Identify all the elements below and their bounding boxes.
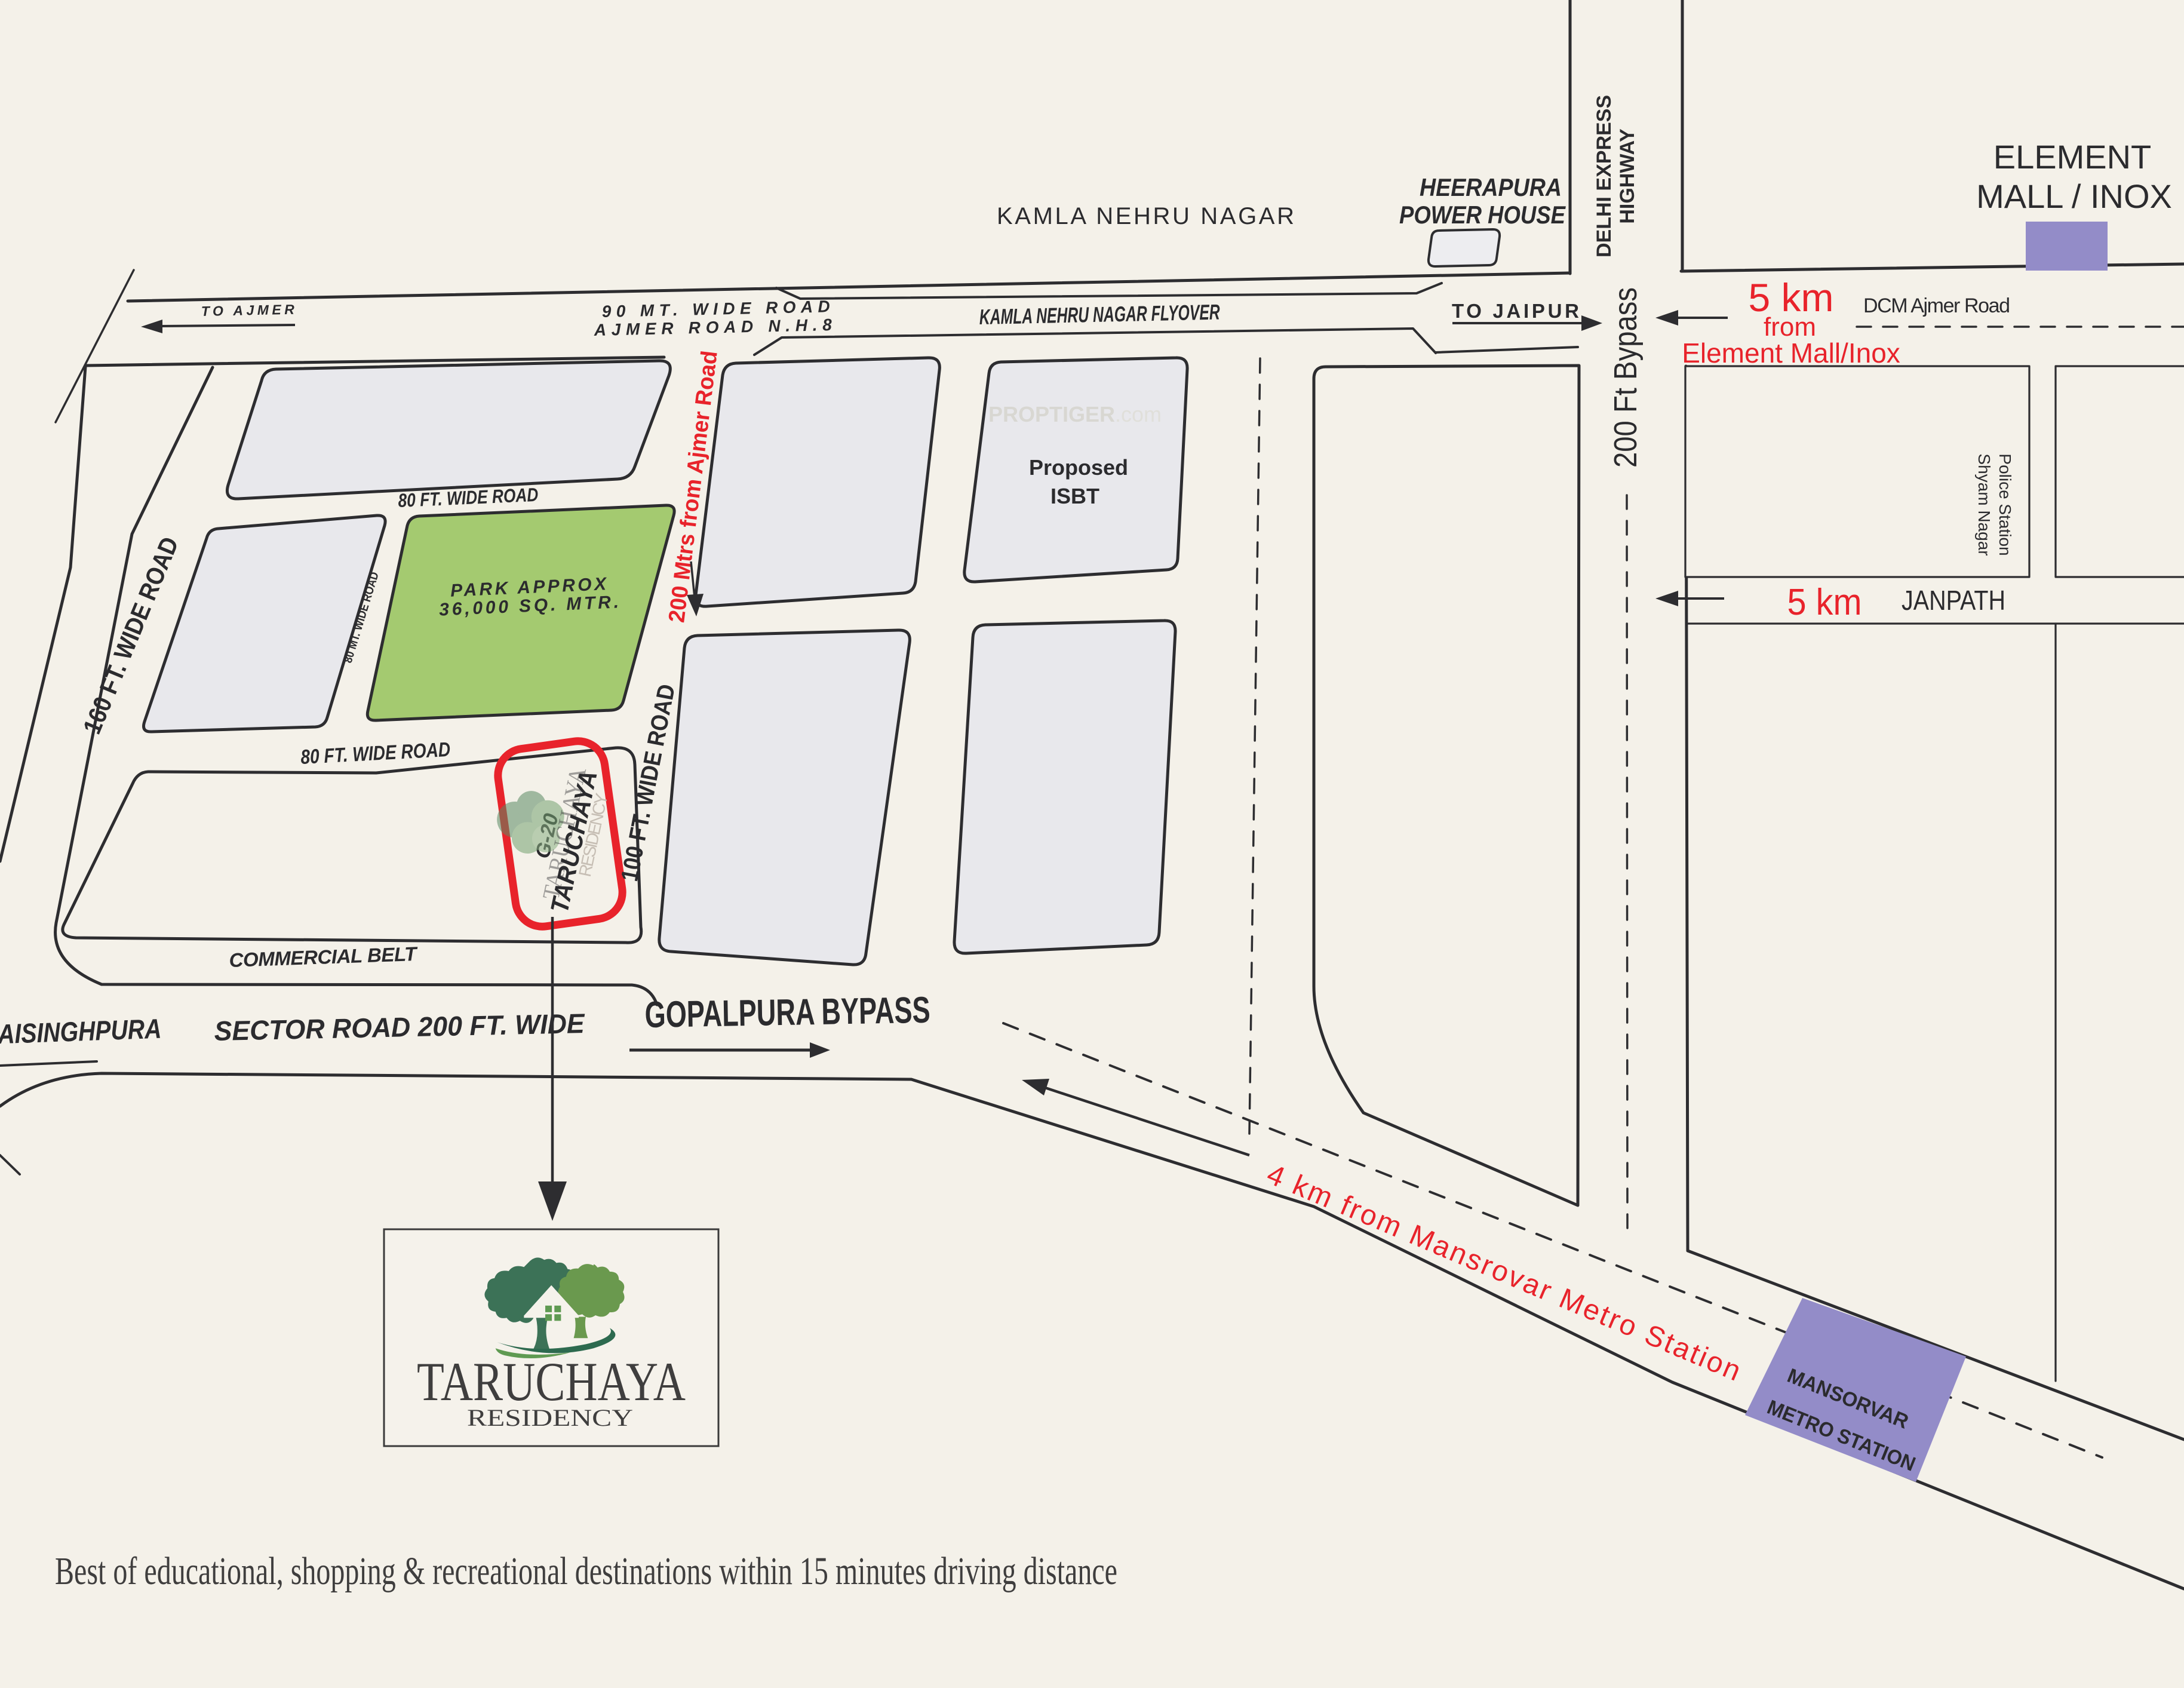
svg-text:5 km: 5 km: [1787, 582, 1862, 623]
svg-text:TO JAIPUR: TO JAIPUR: [1452, 300, 1579, 322]
svg-text:JAISINGHPURA: JAISINGHPURA: [0, 1013, 162, 1050]
svg-text:MALL / INOX: MALL / INOX: [1976, 177, 2172, 215]
svg-text:KAMLA NEHRU NAGAR: KAMLA NEHRU NAGAR: [997, 203, 1294, 229]
svg-text:POWER HOUSE: POWER HOUSE: [1399, 201, 1566, 229]
svg-text:JANPATH: JANPATH: [1902, 585, 2005, 616]
svg-text:Police Station: Police Station: [1996, 453, 2014, 555]
svg-text:Best of educational, shopping: Best of educational, shopping & recreati…: [55, 1549, 1117, 1593]
svg-text:Shyam Nagar: Shyam Nagar: [1975, 453, 1993, 555]
svg-text:Element Mall/Inox: Element Mall/Inox: [1682, 337, 1900, 369]
svg-text:DELHI EXPRESS: DELHI EXPRESS: [1593, 95, 1615, 257]
svg-text:RESIDENCY: RESIDENCY: [467, 1404, 633, 1431]
svg-text:KAMLA NEHRU NAGAR FLYOVER: KAMLA NEHRU NAGAR FLYOVER: [979, 300, 1220, 329]
svg-text:PROPTIGER.com: PROPTIGER.com: [988, 402, 1162, 426]
svg-text:Proposed: Proposed: [1029, 455, 1128, 480]
svg-text:200 Ft Bypass: 200 Ft Bypass: [1608, 287, 1644, 468]
svg-text:DCM Ajmer Road: DCM Ajmer Road: [1863, 294, 2010, 317]
svg-text:HIGHWAY: HIGHWAY: [1616, 128, 1639, 224]
svg-text:GOPALPURA BYPASS: GOPALPURA BYPASS: [644, 990, 930, 1036]
svg-text:TARUCHAYA: TARUCHAYA: [417, 1351, 686, 1412]
svg-text:ISBT: ISBT: [1050, 484, 1099, 508]
svg-text:TO AJMER: TO AJMER: [201, 302, 295, 319]
svg-text:HEERAPURA: HEERAPURA: [1420, 173, 1562, 201]
svg-text:ELEMENT: ELEMENT: [1993, 138, 2152, 176]
